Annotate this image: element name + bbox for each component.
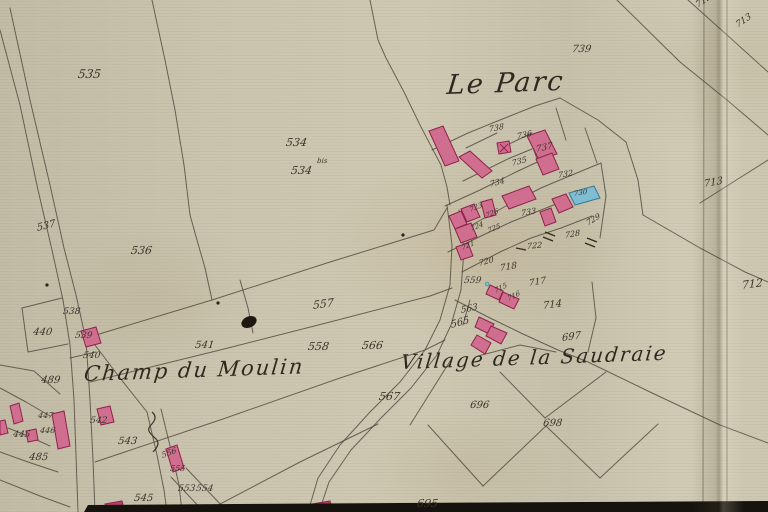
blue-dot	[485, 282, 489, 286]
parcel-boundary	[308, 205, 452, 512]
cadastral-map: 535534534bis5365375384405395404894474464…	[0, 0, 768, 512]
parcel-boundary	[428, 425, 483, 486]
parcel-boundary	[478, 345, 556, 356]
parcel-boundary	[0, 388, 50, 416]
building	[552, 194, 573, 213]
boundary-tick-mark	[587, 238, 597, 242]
parcel-boundary	[28, 344, 68, 352]
map-dot	[216, 301, 219, 304]
building	[456, 243, 473, 260]
parcel-boundary	[556, 108, 566, 140]
parcel-boundary	[186, 468, 224, 508]
parcel-boundary	[500, 372, 545, 418]
parcel-boundary	[462, 216, 592, 272]
sheet-crease-line	[703, 0, 704, 512]
parcel-boundary	[10, 8, 95, 512]
parcel-boundary	[466, 133, 497, 148]
parcel-boundary	[626, 142, 643, 215]
boundary-tick-mark	[516, 248, 526, 250]
building	[471, 335, 491, 354]
map-svg	[0, 0, 768, 512]
ink-blob	[239, 314, 258, 331]
parcel-boundary	[410, 358, 452, 425]
building	[26, 429, 38, 442]
photo-edge-band	[84, 501, 768, 512]
parcel-boundary	[600, 424, 658, 478]
building	[0, 420, 8, 435]
parcel-boundary	[0, 452, 58, 472]
building	[486, 326, 507, 344]
parcel-boundary	[588, 282, 596, 352]
boundary-tick-mark	[585, 243, 595, 247]
parcel-boundary	[600, 196, 606, 238]
building	[481, 199, 496, 218]
building	[81, 327, 101, 347]
parcel-boundary	[370, 0, 450, 205]
parcel-boundary	[152, 0, 212, 300]
parcel-boundary	[545, 372, 606, 418]
parcel-boundary	[546, 426, 600, 478]
parcel-boundary	[86, 208, 447, 338]
map-dot	[401, 233, 404, 236]
parcel-boundary	[617, 0, 768, 135]
boundary-tick-mark	[543, 237, 553, 241]
parcel-boundary	[560, 98, 626, 142]
map-dot	[45, 283, 48, 286]
parcel-boundary	[585, 128, 597, 163]
building	[97, 406, 114, 425]
parcel-boundary	[0, 480, 70, 507]
building	[502, 186, 536, 209]
building	[166, 445, 184, 472]
parcel-boundary	[643, 215, 768, 282]
boundary-tick-mark	[545, 232, 555, 236]
parcel-boundary	[90, 288, 452, 382]
parcel-boundary	[601, 163, 606, 196]
building-blue	[569, 186, 600, 205]
parcel-boundary	[463, 300, 470, 325]
parcel-boundary	[22, 308, 28, 352]
parcel-boundary	[70, 352, 96, 358]
parcel-boundary	[483, 424, 548, 486]
parcel-boundary	[95, 340, 445, 462]
building	[540, 208, 556, 226]
building	[429, 126, 459, 166]
stream-squiggle	[149, 412, 158, 452]
building	[10, 403, 23, 424]
parcel-boundary	[0, 365, 60, 394]
parcel-boundary	[688, 0, 768, 72]
parcel-boundary	[700, 160, 768, 203]
parcel-boundary	[455, 300, 768, 443]
building	[499, 292, 519, 309]
parcel-boundary	[205, 424, 378, 512]
building	[459, 151, 492, 178]
building	[52, 411, 70, 449]
parcel-boundary	[22, 298, 62, 308]
